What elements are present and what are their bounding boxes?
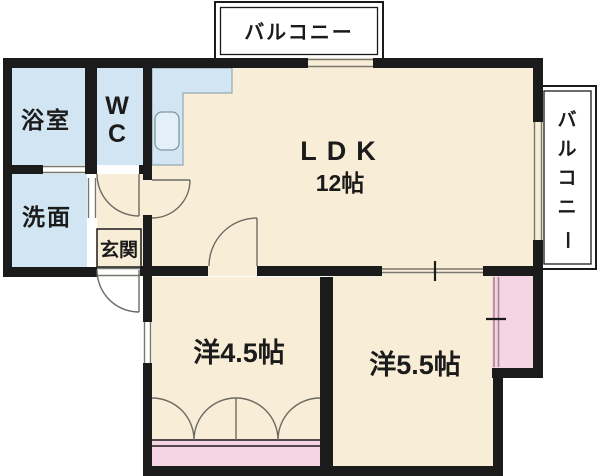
balcony-right: バ ル コ ニ ー [539,86,596,269]
balcony-right-char: ニ [557,197,576,218]
wall-segment [85,58,97,174]
floor-plan-drawing: バルコニー バ ル コ ニ ー [0,0,600,476]
opening-washroom [87,178,97,218]
window-right-balcony [533,122,543,240]
wall-segment [493,378,503,476]
wall-segment [533,58,543,122]
label-ldk: LDK [300,136,386,166]
wall-segment [143,58,152,180]
wall-segment [492,368,543,378]
front-door [97,267,140,312]
wall-segment [257,266,382,276]
wall-segment [139,165,152,174]
door-gap [382,266,483,276]
balcony-right-char: バ [557,109,576,131]
wall-segment [143,277,152,322]
room-ldk-floor [152,68,533,266]
label-toilet-c: C [108,120,126,148]
label-bedroom-large: 洋5.5帖 [369,349,461,380]
wall-segment [143,363,152,476]
closet-bedroom-large [486,276,533,368]
label-toilet-w: W [105,92,129,120]
kitchen-sink [155,112,179,150]
wall-segment [483,266,543,276]
door-gap [208,266,257,276]
balcony-right-char: ー [556,230,577,249]
window-bedroom-small [143,322,152,363]
window-top-balcony [308,58,373,68]
door-gap [143,180,152,215]
balcony-right-char: コ [557,168,576,189]
label-bathroom: 浴室 [21,107,71,133]
balcony-right-char: ル [557,139,576,160]
wall-segment [3,165,43,174]
wall-segment [533,240,543,378]
label-washroom: 洗面 [22,204,72,230]
balcony-top: バルコニー [215,2,383,60]
door-gap [97,165,139,174]
label-entrance: 玄関 [100,238,138,261]
closet-fill [152,439,320,466]
label-bedroom-small: 洋4.5帖 [193,337,285,368]
wall-segment [3,58,308,68]
balcony-top-label: バルコニー [244,21,354,44]
wall-segment [140,266,208,276]
wall-segment [320,277,333,476]
floor-plan: バルコニー バ ル コ ニ ー [0,0,600,476]
wall-segment [3,267,97,277]
wall-segment [143,466,503,476]
label-ldk-size: 12帖 [316,170,365,196]
wall-segment [373,58,543,68]
sliding-door-bathroom [43,165,85,174]
